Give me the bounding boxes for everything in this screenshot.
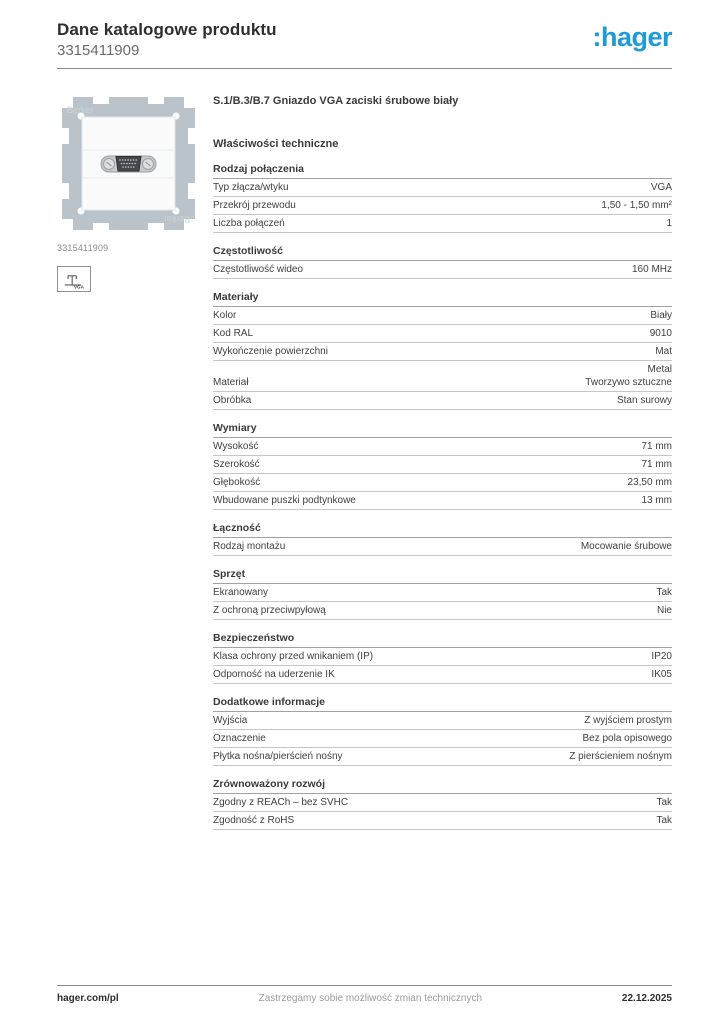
spec-row: Klasa ochrony przed wnikaniem (IP)IP20 [213, 648, 672, 666]
spec-row: Odporność na uderzenie IKIK05 [213, 666, 672, 684]
tech-properties-title: Właściwości techniczne [213, 138, 672, 150]
spec-section: BezpieczeństwoKlasa ochrony przed wnikan… [213, 632, 672, 684]
hager-logo: :hager [592, 24, 672, 51]
spec-label: Wykończenie powierzchni [213, 345, 340, 358]
spec-row: Typ złącza/wtykuVGA [213, 179, 672, 197]
spec-row: Wbudowane puszki podtynkowe13 mm [213, 492, 672, 510]
page-footer: hager.com/pl Zastrzegamy sobie możliwość… [57, 985, 672, 1004]
datasheet-page: Dane katalogowe produktu 3315411909 :hag… [0, 0, 724, 1024]
spec-label: Szerokość [213, 458, 272, 471]
spec-value: Nie [657, 604, 672, 617]
spec-value: Mat [655, 345, 672, 358]
spec-value: IK05 [651, 668, 672, 681]
footer-website-link[interactable]: hager.com/pl [57, 993, 119, 1004]
spec-value: 1 [666, 217, 672, 230]
spec-label: Wysokość [213, 440, 270, 453]
spec-row: WyjściaZ wyjściem prostym [213, 712, 672, 730]
footer-divider [57, 985, 672, 986]
spec-section: ŁącznośćRodzaj montażuMocowanie śrubowe [213, 522, 672, 556]
spec-label: Typ złącza/wtyku [213, 181, 301, 194]
spec-section-title: Zrównoważony rozwój [213, 778, 672, 794]
spec-value: VGA [651, 181, 672, 194]
spec-label: Liczba połączeń [213, 217, 297, 230]
spec-section-title: Dodatkowe informacje [213, 696, 672, 712]
spec-value: Tak [656, 814, 672, 827]
spec-section-title: Częstotliwość [213, 245, 672, 261]
spec-label: Częstotliwość wideo [213, 263, 315, 276]
spec-label: Zgodność z RoHS [213, 814, 306, 827]
spec-value: IP20 [651, 650, 672, 663]
spec-value: 71 mm [641, 440, 672, 453]
spec-label: Płytka nośna/pierścień nośny [213, 750, 355, 763]
spec-label: Obróbka [213, 394, 263, 407]
spec-label: Rodzaj montażu [213, 540, 297, 553]
spec-row: Głębokość23,50 mm [213, 474, 672, 492]
header-product-number: 3315411909 [57, 42, 277, 59]
spec-section-title: Materiały [213, 291, 672, 307]
spec-row: KolorBiały [213, 307, 672, 325]
product-image: Berker Berker [57, 92, 200, 235]
spec-value: Tak [656, 796, 672, 809]
spec-label: Kod RAL [213, 327, 265, 340]
vga-icon-label: VGA [74, 285, 85, 290]
spec-value: 1,50 - 1,50 mm² [601, 199, 672, 212]
spec-value: 13 mm [641, 494, 672, 507]
spec-row: Częstotliwość wideo160 MHz [213, 261, 672, 279]
spec-value: MetalTworzywo sztuczne [585, 363, 672, 389]
spec-row: Zgodny z REACh – bez SVHCTak [213, 794, 672, 812]
spec-section-title: Rodzaj połączenia [213, 163, 672, 179]
spec-label: Klasa ochrony przed wnikaniem (IP) [213, 650, 385, 663]
spec-section: Dodatkowe informacjeWyjściaZ wyjściem pr… [213, 696, 672, 766]
product-media-column: Berker Berker [57, 92, 200, 842]
spec-section: MateriałyKolorBiałyKod RAL9010Wykończeni… [213, 291, 672, 410]
spec-row: ObróbkaStan surowy [213, 392, 672, 410]
spec-row: Rodzaj montażuMocowanie śrubowe [213, 538, 672, 556]
page-title: Dane katalogowe produktu [57, 20, 277, 40]
spec-row: Szerokość71 mm [213, 456, 672, 474]
spec-row: Przekrój przewodu1,50 - 1,50 mm² [213, 197, 672, 215]
spec-value: 23,50 mm [628, 476, 672, 489]
spec-value: Mocowanie śrubowe [581, 540, 672, 553]
spec-row: Liczba połączeń1 [213, 215, 672, 233]
spec-row: OznaczenieBez pola opisowego [213, 730, 672, 748]
spec-sections: Rodzaj połączeniaTyp złącza/wtykuVGAPrze… [213, 163, 672, 830]
spec-row: Z ochroną przeciwpyłowąNie [213, 602, 672, 620]
spec-row: Wykończenie powierzchniMat [213, 343, 672, 361]
spec-section: CzęstotliwośćCzęstotliwość wideo160 MHz [213, 245, 672, 279]
spec-value: Biały [650, 309, 672, 322]
spec-section: Rodzaj połączeniaTyp złącza/wtykuVGAPrze… [213, 163, 672, 233]
spec-row: Wysokość71 mm [213, 438, 672, 456]
spec-section-title: Wymiary [213, 422, 672, 438]
spec-row: Zgodność z RoHSTak [213, 812, 672, 830]
product-name: S.1/B.3/B.7 Gniazdo VGA zaciski śrubowe … [213, 95, 672, 107]
spec-section: WymiaryWysokość71 mmSzerokość71 mmGłębok… [213, 422, 672, 510]
vga-socket-symbol-icon: VGA [57, 266, 91, 292]
spec-label: Materiał [213, 376, 261, 389]
spec-label: Oznaczenie [213, 732, 278, 745]
spec-label: Odporność na uderzenie IK [213, 668, 347, 681]
spec-label: Z ochroną przeciwpyłową [213, 604, 338, 617]
header-divider [57, 68, 672, 69]
spec-section-title: Bezpieczeństwo [213, 632, 672, 648]
spec-label: Ekranowany [213, 586, 280, 599]
vga-socket-product-image: Berker Berker [57, 92, 200, 235]
spec-value: Stan surowy [617, 394, 672, 407]
spec-column: S.1/B.3/B.7 Gniazdo VGA zaciski śrubowe … [213, 92, 672, 842]
spec-value: Tak [656, 586, 672, 599]
spec-row: Kod RAL9010 [213, 325, 672, 343]
image-watermark-bottom: Berker [163, 214, 190, 224]
image-watermark-top: Berker [67, 105, 94, 115]
main-content: Berker Berker [57, 92, 672, 842]
spec-value: 9010 [650, 327, 672, 340]
footer-row: hager.com/pl Zastrzegamy sobie możliwość… [57, 993, 672, 1004]
spec-row: MateriałMetalTworzywo sztuczne [213, 361, 672, 392]
header-text-block: Dane katalogowe produktu 3315411909 [57, 20, 277, 59]
product-image-caption: 3315411909 [57, 243, 200, 253]
spec-section: SprzętEkranowanyTakZ ochroną przeciwpyło… [213, 568, 672, 620]
spec-section-title: Łączność [213, 522, 672, 538]
spec-label: Wyjścia [213, 714, 259, 727]
spec-label: Głębokość [213, 476, 272, 489]
spec-value: 160 MHz [632, 263, 672, 276]
spec-value: Z pierścieniem nośnym [569, 750, 672, 763]
spec-row: EkranowanyTak [213, 584, 672, 602]
spec-section-title: Sprzęt [213, 568, 672, 584]
footer-date: 22.12.2025 [622, 993, 672, 1004]
spec-label: Kolor [213, 309, 248, 322]
spec-section: Zrównoważony rozwójZgodny z REACh – bez … [213, 778, 672, 830]
spec-value: Z wyjściem prostym [584, 714, 672, 727]
footer-disclaimer: Zastrzegamy sobie możliwość zmian techni… [259, 993, 482, 1004]
page-header: Dane katalogowe produktu 3315411909 :hag… [57, 20, 672, 59]
spec-label: Wbudowane puszki podtynkowe [213, 494, 368, 507]
spec-value: 71 mm [641, 458, 672, 471]
spec-value: Bez pola opisowego [582, 732, 672, 745]
spec-row: Płytka nośna/pierścień nośnyZ pierścieni… [213, 748, 672, 766]
spec-label: Przekrój przewodu [213, 199, 308, 212]
spec-label: Zgodny z REACh – bez SVHC [213, 796, 360, 809]
